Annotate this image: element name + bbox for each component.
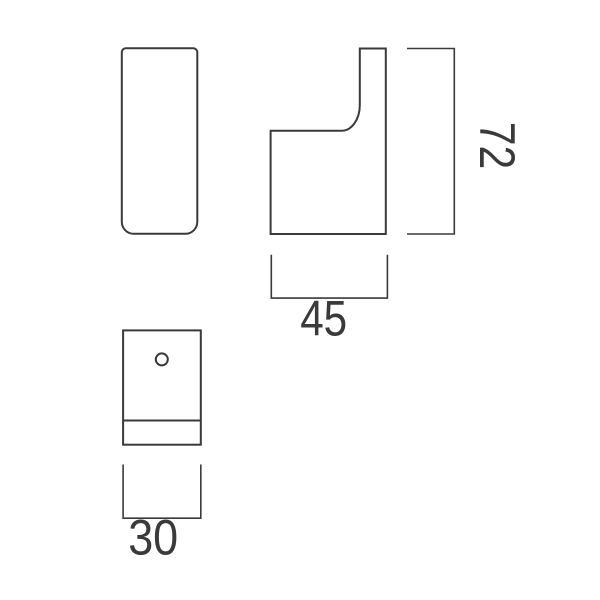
svg-text:45: 45: [300, 291, 347, 347]
svg-text:30: 30: [128, 510, 178, 566]
svg-text:72: 72: [469, 122, 525, 170]
